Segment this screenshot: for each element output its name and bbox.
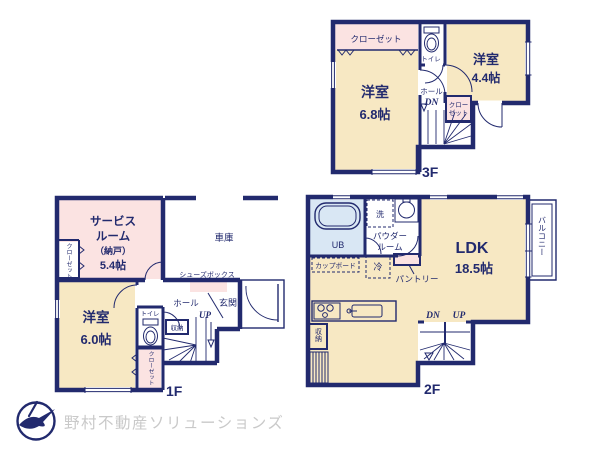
f1-bottom-closet-label: クローゼット [147,351,154,386]
f1-left-closet-label: クローゼット [65,243,72,279]
f1-service-line3: （納戸） [95,245,131,256]
f2-powder-line2: ルーム [377,242,402,252]
floorplan-svg: クローゼット トイレ 洋室 6.8帖 洋室 4.4帖 ホール DN クロー ゼッ… [0,0,600,450]
f1-hall-label: ホール [173,298,199,308]
f1-room60-size: 6.0帖 [80,332,111,347]
floor-2f: UB 洗 パウダー ルーム LDK 18.5帖 バルコニー カップボード 冷 パ… [308,195,556,398]
f3-toilet-label: トイレ [421,56,441,63]
f2-room-fills [310,199,526,383]
f2-ub-label: UB [332,240,345,250]
f2-ldk-name: LDK [456,240,489,257]
f1-room60-name: 洋室 [83,309,110,325]
f2-pantry-label: パントリー [396,274,439,284]
f3-room44-size: 4.4帖 [472,70,501,85]
brand-name: 野村不動産ソリューションズ [64,414,284,432]
f1-service-line1: サービス [90,214,136,228]
brand-footer: 野村不動産ソリューションズ [18,402,285,440]
f3-side-closet-line1: クロー [449,101,469,109]
f1-toilet-label: トイレ [141,311,160,318]
f1-garage-label: 車庫 [214,232,234,244]
f2-storage-label: 収納 [315,328,323,343]
f2-ldk-size: 18.5帖 [455,261,493,276]
f1-room-fills [59,200,227,388]
floor-1f: サービス ルーム （納戸） 5.4帖 クローゼット 車庫 シューズボックス ホー… [55,198,285,399]
f2-dn-label: DN [425,311,441,321]
f3-side-closet-line2: ゼット [449,108,469,117]
f1-storage-label: 収納 [171,323,184,332]
f2-up-label: UP [453,311,466,321]
f1-up-label: UP [199,310,211,320]
f1-toilet-icon [143,319,158,345]
f3-room68-size: 6.8帖 [359,107,390,122]
f1-service-size: 5.4帖 [100,258,126,272]
f1-floor-label: 1F [166,383,183,399]
f2-powder-line1: パウダー [373,231,407,241]
f1-service-line2: ルーム [96,230,131,243]
f2-washer-label: 洗 [376,209,384,219]
f1-shoebox [190,281,227,292]
f2-louver [310,352,328,383]
f3-dn-label: DN [424,98,440,108]
f2-cupboard-label: カップボード [315,262,356,270]
floor-3f: クローゼット トイレ 洋室 6.8帖 洋室 4.4帖 ホール DN クロー ゼッ… [331,22,532,180]
f1-shoebox-label: シューズボックス [179,270,234,279]
f3-hall-label: ホール [420,87,443,96]
f2-balcony-label: バルコニー [538,216,547,256]
f2-floor-label: 2F [424,381,441,397]
f3-room44-name: 洋室 [473,52,499,67]
brand-logo-bird-icon [18,402,56,440]
f2-fridge-label: 冷 [373,261,382,272]
f3-floor-label: 3F [422,164,439,180]
f3-closet-top-label: クローゼット [350,34,401,44]
f1-entrance-porch [240,280,284,328]
floorplan-page: クローゼット トイレ 洋室 6.8帖 洋室 4.4帖 ホール DN クロー ゼッ… [0,0,600,450]
f3-room68-name: 洋室 [361,84,389,100]
f3-toilet-icon [424,27,439,52]
f1-entrance-label: 玄関 [219,297,237,308]
